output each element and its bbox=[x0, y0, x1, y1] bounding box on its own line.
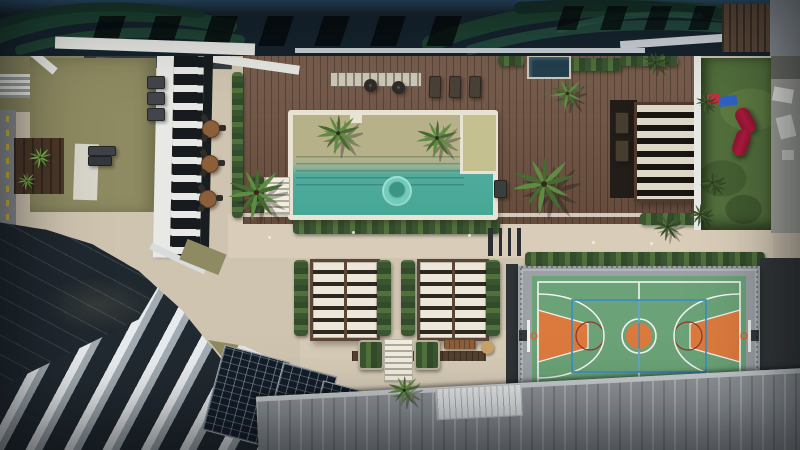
chair bbox=[200, 134, 209, 143]
path-light bbox=[468, 234, 471, 237]
sun-lounger bbox=[147, 92, 165, 105]
sun-lounger bbox=[615, 112, 629, 134]
sun-lounger bbox=[88, 146, 116, 156]
palm-tree bbox=[508, 148, 580, 220]
sun-lounger bbox=[88, 156, 112, 166]
palm-tree bbox=[385, 371, 423, 409]
closed-umbrella bbox=[364, 79, 377, 92]
sun-lounger bbox=[449, 76, 462, 98]
palm-tree bbox=[16, 170, 38, 192]
chair bbox=[216, 195, 223, 201]
palm-tree bbox=[651, 210, 685, 244]
path-light bbox=[352, 231, 355, 234]
chair bbox=[199, 169, 208, 178]
aerial-photo-rooftop-amenity-deck bbox=[0, 0, 800, 450]
palm-tree bbox=[27, 144, 53, 170]
chair bbox=[197, 204, 206, 213]
path-light bbox=[592, 241, 595, 244]
cafe-table bbox=[194, 148, 224, 178]
sun-lounger bbox=[429, 76, 442, 98]
cafe-table bbox=[192, 183, 222, 213]
palm-tree bbox=[694, 90, 718, 114]
sun-lounger bbox=[147, 108, 165, 121]
sun-lounger bbox=[494, 180, 507, 198]
sun-lounger bbox=[469, 76, 482, 98]
umbrella-pole-tip bbox=[369, 84, 372, 87]
palm-tree bbox=[413, 114, 461, 162]
path-light bbox=[268, 236, 271, 239]
sun-lounger bbox=[147, 76, 165, 89]
palm-tree bbox=[641, 48, 670, 77]
palm-tree bbox=[547, 73, 588, 114]
chair bbox=[218, 160, 225, 166]
umbrella-pole-tip bbox=[397, 86, 400, 89]
cafe-table bbox=[195, 113, 225, 143]
closed-umbrella bbox=[392, 81, 405, 94]
sun-lounger bbox=[615, 140, 629, 162]
red-pouf-roller bbox=[730, 127, 753, 157]
path-light bbox=[650, 242, 653, 245]
palm-tree bbox=[686, 200, 715, 229]
palm-tree bbox=[224, 160, 289, 225]
palm-tree bbox=[698, 168, 727, 197]
scene-objects-layer bbox=[0, 0, 800, 450]
palm-tree bbox=[313, 108, 363, 158]
chair bbox=[219, 125, 226, 131]
